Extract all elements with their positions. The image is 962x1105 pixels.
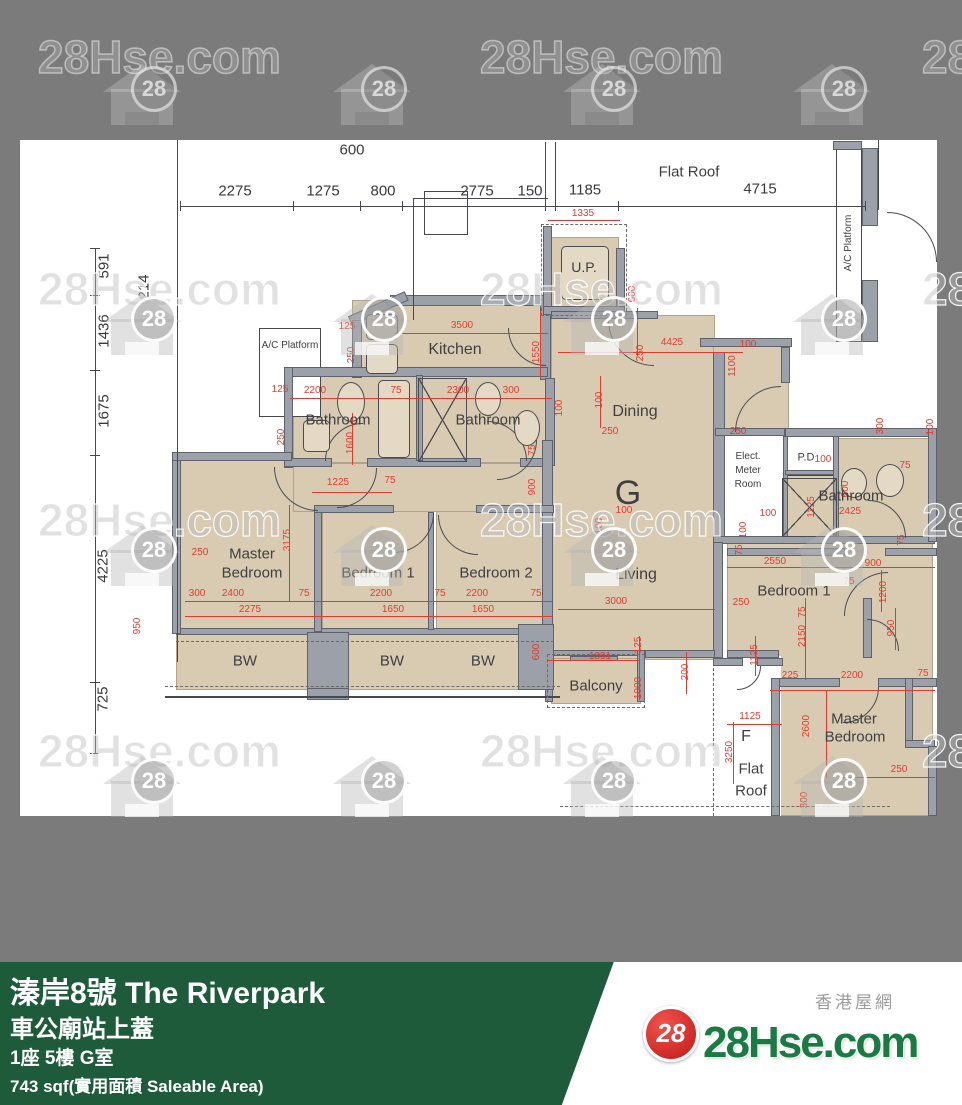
watermark-house-icon: 28	[563, 525, 641, 589]
red-dim-label: 75	[384, 476, 395, 486]
red-dim-label: 75	[899, 461, 910, 471]
wall	[905, 678, 913, 744]
red-dim-label: 2600	[802, 715, 812, 737]
room-label-flat-roof-top: Flat Roof	[659, 165, 720, 180]
red-dim-label: 1550	[532, 341, 542, 363]
property-area: 743 sqf(實用面積 Saleable Area)	[10, 1072, 264, 1097]
red-dim-label: 2400	[222, 589, 244, 599]
watermark-house-icon: 28	[563, 756, 641, 820]
room-label-dining: Dining	[612, 404, 657, 420]
red-dim-label: 200	[681, 664, 691, 681]
red-dim-line	[548, 220, 620, 221]
room-label-bw-2: BW	[380, 654, 404, 669]
red-dim-label: 1891	[589, 652, 611, 662]
black-dim-label: 600	[339, 143, 364, 158]
watermark-house-part: 28	[131, 296, 177, 342]
watermark-house-icon: 28	[103, 525, 181, 589]
room-label-kitchen: Kitchen	[428, 342, 481, 358]
outline-line	[90, 682, 100, 683]
watermark-house-icon: 28	[563, 64, 641, 128]
room-label-master-bedroom-f-2: Bedroom	[825, 730, 886, 745]
red-dim-label: 3000	[605, 597, 627, 607]
watermark-house-part	[815, 573, 849, 586]
watermark-house-part	[355, 112, 389, 125]
red-dim-label: 1650	[472, 605, 494, 615]
red-dim-label: 75	[530, 589, 541, 599]
red-dim-label: 100	[815, 455, 832, 465]
red-dim-label: 1650	[382, 605, 404, 615]
red-dim-label: 300	[503, 386, 520, 396]
watermark-house-part	[355, 804, 389, 817]
watermark-house-icon: 28	[103, 294, 181, 358]
red-dim-label: 125	[634, 637, 644, 654]
wall	[771, 678, 780, 816]
room-label-flat-roof-f-1: Flat	[738, 762, 763, 777]
wall	[176, 628, 554, 635]
watermark-house-part	[815, 804, 849, 817]
wall	[862, 148, 878, 226]
red-dim-label: 1100	[728, 355, 738, 377]
watermark-house-part: 28	[591, 758, 637, 804]
red-dim-label: 250	[602, 427, 619, 437]
logo-brand-text: 28Hse.com	[703, 1018, 917, 1068]
room-label-elect-meter-room-2: Meter	[735, 466, 761, 476]
red-dim-label: 1000	[634, 677, 644, 699]
red-dim-label: 950	[133, 618, 143, 635]
red-dim-line	[185, 616, 552, 617]
red-dim-label: 1200	[879, 581, 889, 603]
red-dim-label: 1335	[572, 209, 594, 219]
watermark-house-part	[815, 342, 849, 355]
red-dim-label: 75	[434, 589, 445, 599]
watermark-house-icon: 28	[333, 294, 411, 358]
black-dim-label: 800	[370, 184, 395, 199]
red-dim-label: 250	[730, 427, 747, 437]
wall	[833, 141, 862, 150]
black-dim-label: 4715	[743, 182, 776, 197]
watermark-house-part	[585, 342, 619, 355]
red-dim-line	[290, 398, 552, 399]
watermark-house-icon: 28	[333, 756, 411, 820]
red-dim-line	[727, 724, 782, 725]
wall	[781, 347, 790, 383]
room-label-pd: P.D	[798, 453, 815, 464]
black-dim-label: 2775	[460, 184, 493, 199]
red-dim-label: 75	[528, 444, 538, 455]
property-title: 溱岸8號 The Riverpark	[10, 968, 325, 1012]
watermark-house-icon: 28	[793, 756, 871, 820]
outline-line	[293, 201, 294, 211]
red-dim-label: 4425	[661, 338, 683, 348]
outline-line	[618, 201, 619, 211]
red-dim-label: 300	[189, 589, 206, 599]
room-label-ac-platform-right: A/C Platform	[844, 215, 854, 272]
outline-line	[413, 198, 414, 320]
room-label-bw-3: BW	[471, 654, 495, 669]
red-dim-label: 100	[926, 419, 936, 436]
watermark-house-part: 28	[821, 758, 867, 804]
red-dim-label: 2200	[466, 589, 488, 599]
room-label-flat-roof-f-2: Roof	[735, 784, 767, 799]
red-dim-label: 2300	[447, 386, 469, 396]
room-label-bw-1: BW	[233, 654, 257, 669]
outline-line	[90, 455, 100, 456]
watermark-house-icon: 28	[333, 525, 411, 589]
black-dim-label: 1675	[97, 394, 112, 427]
watermark-house-icon: 28	[563, 294, 641, 358]
wall	[757, 658, 783, 666]
room-label-balcony: Balcony	[569, 679, 622, 694]
watermark-house-part: 28	[131, 758, 177, 804]
watermark-house-part: 28	[361, 296, 407, 342]
room-label-bathroom-f: Bathroom	[818, 489, 883, 504]
red-dim-label: 2200	[370, 589, 392, 599]
black-dim-label: 725	[96, 686, 111, 711]
wall	[713, 542, 723, 658]
watermark-house-part: 28	[131, 527, 177, 573]
watermark-house-part: 28	[821, 296, 867, 342]
red-dim-line	[770, 690, 935, 691]
watermark-house-part: 28	[591, 527, 637, 573]
black-dim-label: 150	[517, 184, 542, 199]
red-dim-label: 75	[298, 589, 309, 599]
wall	[172, 452, 292, 461]
watermark-house-part: 28	[591, 66, 637, 112]
room-label-bathroom-2: Bathroom	[455, 413, 520, 428]
watermark-house-icon: 28	[793, 294, 871, 358]
watermark-house-icon: 28	[793, 64, 871, 128]
watermark-house-part: 28	[361, 758, 407, 804]
red-dim-line	[289, 505, 290, 601]
watermark-house-icon: 28	[103, 64, 181, 128]
black-dim-label: 1275	[306, 184, 339, 199]
watermark-text: 28Hse.com	[922, 497, 962, 543]
red-dim-label: 300	[876, 418, 886, 435]
red-dim-label: 2550	[764, 557, 786, 567]
red-dim-label: 3175	[283, 529, 293, 551]
watermark-house-part: 28	[361, 527, 407, 573]
red-dim-label: 950	[887, 620, 897, 637]
property-subtitle: 車公廟站上蓋	[10, 1009, 154, 1044]
watermark-text: 28Hse.com	[922, 34, 962, 80]
watermark-house-icon: 28	[103, 756, 181, 820]
dashed-line	[176, 641, 554, 642]
red-dim-label: 75	[917, 669, 928, 679]
watermark-house-part	[125, 573, 159, 586]
red-dim-line	[312, 492, 392, 493]
red-dim-label: 600	[532, 644, 542, 661]
red-dim-label: 3250	[725, 741, 735, 763]
red-dim-line	[395, 333, 548, 334]
outline-line	[878, 140, 879, 210]
room-label-bathroom-1: Bathroom	[305, 413, 370, 428]
red-dim-label: 250	[733, 598, 750, 608]
red-dim-label: 100	[760, 509, 777, 519]
red-dim-label: 75	[390, 386, 401, 396]
wall	[314, 505, 394, 513]
logo-tagline: 香港屋網	[815, 988, 895, 1013]
red-dim-label: 2200	[841, 671, 863, 681]
outline-line	[865, 201, 866, 211]
watermark-text: 28Hse.com	[922, 266, 962, 312]
red-dim-label: 75	[798, 606, 808, 617]
red-dim-label: 900	[528, 479, 538, 496]
dashed-line	[165, 686, 560, 687]
red-dim-label: 2150	[798, 625, 808, 647]
red-dim-label: 75	[735, 544, 745, 555]
black-dim-label: 2275	[218, 184, 251, 199]
red-dim-label: 1125	[739, 712, 761, 722]
red-dim-label: 100	[555, 400, 565, 417]
red-dim-label: 125	[272, 385, 289, 395]
property-unit: 1座 5樓 G室	[10, 1043, 113, 1070]
red-dim-label: 100	[595, 392, 605, 409]
watermark-house-part	[355, 573, 389, 586]
red-dim-line	[558, 609, 715, 610]
watermark-text: 28Hse.com	[922, 728, 962, 774]
watermark-house-icon: 28	[333, 64, 411, 128]
room-label-master-bedroom-2: Bedroom	[222, 566, 283, 581]
watermark-house-part	[125, 112, 159, 125]
red-dim-label: 250	[277, 429, 287, 446]
red-dim-label: 100	[740, 340, 757, 350]
watermark-house-part: 28	[361, 66, 407, 112]
red-dim-label: 100	[739, 522, 749, 539]
red-dim-label: 250	[891, 765, 908, 775]
wall	[785, 470, 837, 475]
watermark-house-part	[585, 573, 619, 586]
wall	[885, 548, 937, 556]
floorplan-page: 1335125250350015506002504425100110012522…	[0, 0, 962, 1105]
outline-line	[555, 142, 556, 204]
wall	[645, 650, 715, 658]
wall	[307, 688, 349, 700]
watermark-house-part	[585, 804, 619, 817]
watermark-house-icon: 28	[793, 525, 871, 589]
logo-28-badge: 28	[643, 1006, 699, 1062]
room-label-elect-meter-room-1: Elect.	[735, 452, 760, 462]
watermark-house-part	[585, 112, 619, 125]
wall	[713, 658, 743, 666]
red-dim-label: 1125	[807, 496, 817, 518]
room-label-elect-meter-room-3: Room	[735, 480, 762, 490]
room-label-master-bedroom-1: Master	[229, 547, 275, 562]
outline-line	[90, 248, 100, 249]
floor-plan: 1335125250350015506002504425100110012522…	[0, 0, 962, 1105]
red-dim-label: 3500	[451, 321, 473, 331]
outline-line	[360, 201, 361, 211]
red-dim-label: 75	[897, 534, 907, 545]
watermark-house-part	[125, 804, 159, 817]
watermark-house-part: 28	[821, 66, 867, 112]
room-label-ac-platform-left: A/C Platform	[262, 341, 319, 351]
watermark-house-part: 28	[131, 66, 177, 112]
wall	[314, 512, 322, 632]
watermark-house-part: 28	[821, 527, 867, 573]
black-dim-label: 1185	[569, 183, 601, 198]
watermark-house-part	[355, 342, 389, 355]
outline-line	[545, 142, 546, 204]
red-dim-label: 1225	[327, 478, 349, 488]
wall	[785, 428, 935, 437]
red-dim-label: 2425	[839, 507, 861, 517]
red-dim-label: 2200	[304, 386, 326, 396]
watermark-house-part	[815, 112, 849, 125]
watermark-house-part	[125, 342, 159, 355]
red-dim-label: 250	[192, 548, 209, 558]
room-label-unit-f: F	[741, 729, 751, 745]
outline-line	[165, 696, 560, 698]
outline-line	[90, 370, 100, 371]
red-dim-label: 1125	[750, 644, 760, 666]
watermark-house-part: 28	[591, 296, 637, 342]
red-dim-label: 225	[782, 671, 799, 681]
red-dim-label: 2275	[239, 605, 261, 615]
room-label-master-bedroom-f-1: Master	[831, 712, 877, 727]
outline-line	[180, 206, 865, 207]
red-dim-line	[185, 601, 552, 602]
outline-line	[402, 201, 403, 211]
room-label-bedroom-2: Bedroom 2	[459, 566, 532, 581]
outline-line	[180, 201, 181, 211]
red-dim-label: 1600	[346, 432, 356, 454]
